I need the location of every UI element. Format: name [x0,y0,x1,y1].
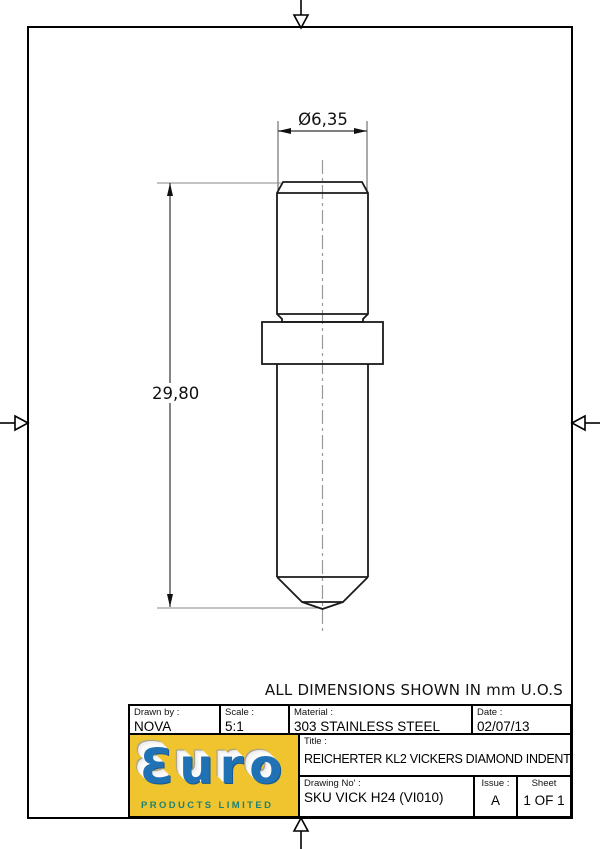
title-block: Drawn by : NOVA Scale : 5:1 Material : 3… [128,704,572,818]
scale-value: 5:1 [221,718,288,734]
length-dimension-label: 29,80 [152,384,199,403]
drawing-no-cell: Drawing No' : SKU VICK H24 (VI010) [300,777,475,816]
drawn-by-label: Drawn by : [130,706,219,718]
material-value: 303 STAINLESS STEEL [290,718,471,734]
scale-cell: Scale : 5:1 [221,706,290,735]
title-value: REICHERTER KL2 VICKERS DIAMOND INDENTER [300,747,570,767]
sheet-cell: Sheet 1 OF 1 [518,777,570,816]
scale-label: Scale : [221,706,288,718]
date-cell: Date : 02/07/13 [473,706,570,735]
drawn-by-cell: Drawn by : NOVA [130,706,221,735]
centering-mark-right [572,416,600,430]
title-label: Title : [300,735,570,747]
material-cell: Material : 303 STAINLESS STEEL [290,706,473,735]
company-logo: Ɛuro PRODUCTS LIMITED [130,735,300,816]
centering-mark-top [294,0,308,28]
logo-brand-text: Ɛuro [140,743,288,791]
material-label: Material : [290,706,471,718]
length-dimension: 29,80 [149,183,322,608]
date-label: Date : [473,706,570,718]
centering-mark-bottom [294,818,308,849]
centering-mark-left [0,416,28,430]
drawn-by-value: NOVA [130,718,219,734]
sheet-value: 1 OF 1 [518,789,570,808]
dimensions-note: ALL DIMENSIONS SHOWN IN mm U.O.S [265,681,563,699]
sheet-label: Sheet [518,777,570,789]
date-value: 02/07/13 [473,718,570,734]
drawing-no-label: Drawing No' : [300,777,473,789]
issue-value: A [475,789,516,808]
title-cell: Title : REICHERTER KL2 VICKERS DIAMOND I… [300,735,570,777]
issue-cell: Issue : A [475,777,518,816]
drawing-sheet: Ø6,35 29,80 ALL DIMENS [0,0,600,849]
issue-label: Issue : [475,777,516,789]
logo-tagline-text: PRODUCTS LIMITED [141,800,273,811]
border-frame [28,27,572,818]
drawing-no-value: SKU VICK H24 (VI010) [300,789,473,805]
diameter-dimension-label: Ø6,35 [298,110,348,129]
